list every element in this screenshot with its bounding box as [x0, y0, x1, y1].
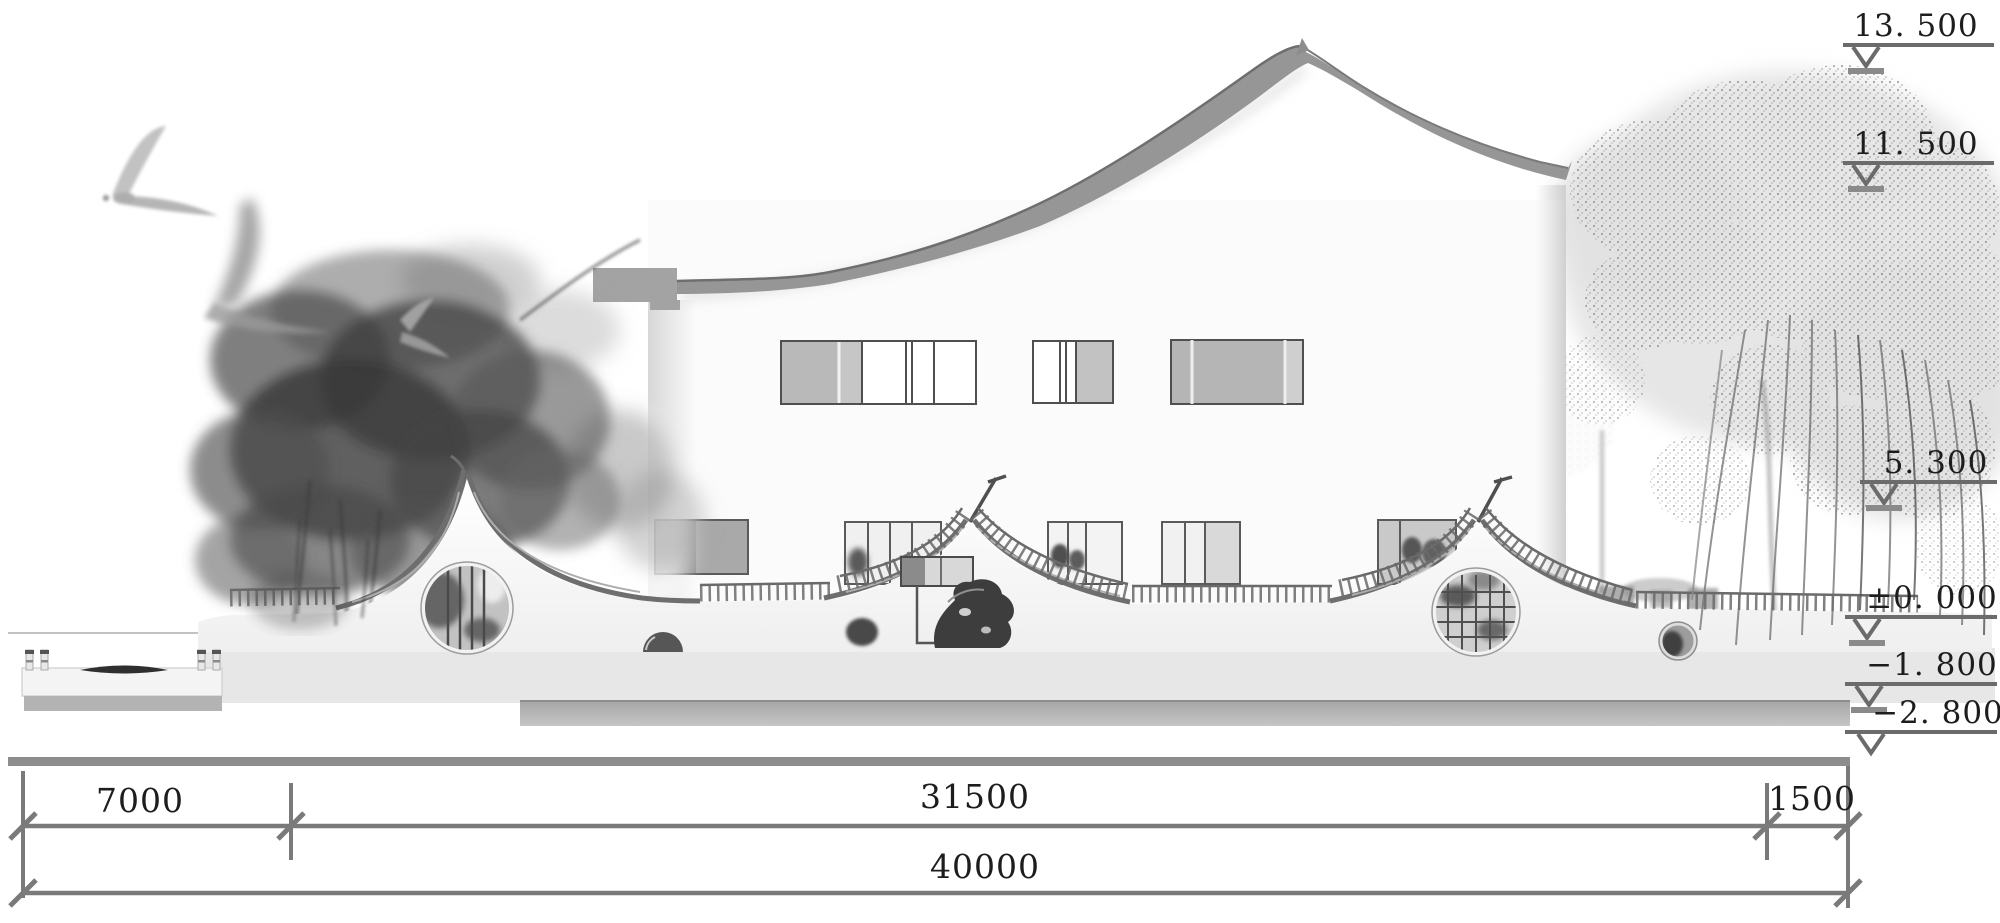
terrace-step [520, 701, 1850, 726]
upper-window-middle [1033, 341, 1113, 403]
upper-window-left [781, 341, 976, 404]
stone-platform [22, 650, 222, 711]
moon-window-right [1432, 568, 1520, 656]
level-label: 5. 300 [1884, 445, 1989, 481]
level-marker-13500: 13. 500 [1843, 8, 1994, 74]
level-label: 13. 500 [1853, 8, 1978, 44]
dimension-label-7000: 7000 [96, 781, 184, 820]
upper-window-row [781, 340, 1303, 404]
level-label: −2. 800 [1872, 695, 2000, 731]
left-eave-block [593, 268, 677, 302]
dimension-label-31500: 31500 [920, 777, 1030, 816]
platform-base [24, 696, 222, 711]
elevation-drawing-canvas: 13. 500 11. 500 5. 300 ±0. 000 −1. 800 [0, 0, 2000, 923]
upper-window-right [1171, 340, 1303, 404]
ground-datum-line [8, 757, 1850, 766]
bird-1 [103, 126, 218, 216]
dimension-label-1500: 1500 [1768, 779, 1856, 818]
ground-window-3 [1162, 522, 1240, 584]
level-label: ±0. 000 [1866, 580, 1998, 616]
dimension-label-40000: 40000 [930, 847, 1040, 886]
dimension-system: 7000 31500 1500 40000 [10, 766, 1861, 908]
level-label: 11. 500 [1853, 126, 1978, 162]
level-label: −1. 800 [1866, 647, 1998, 683]
